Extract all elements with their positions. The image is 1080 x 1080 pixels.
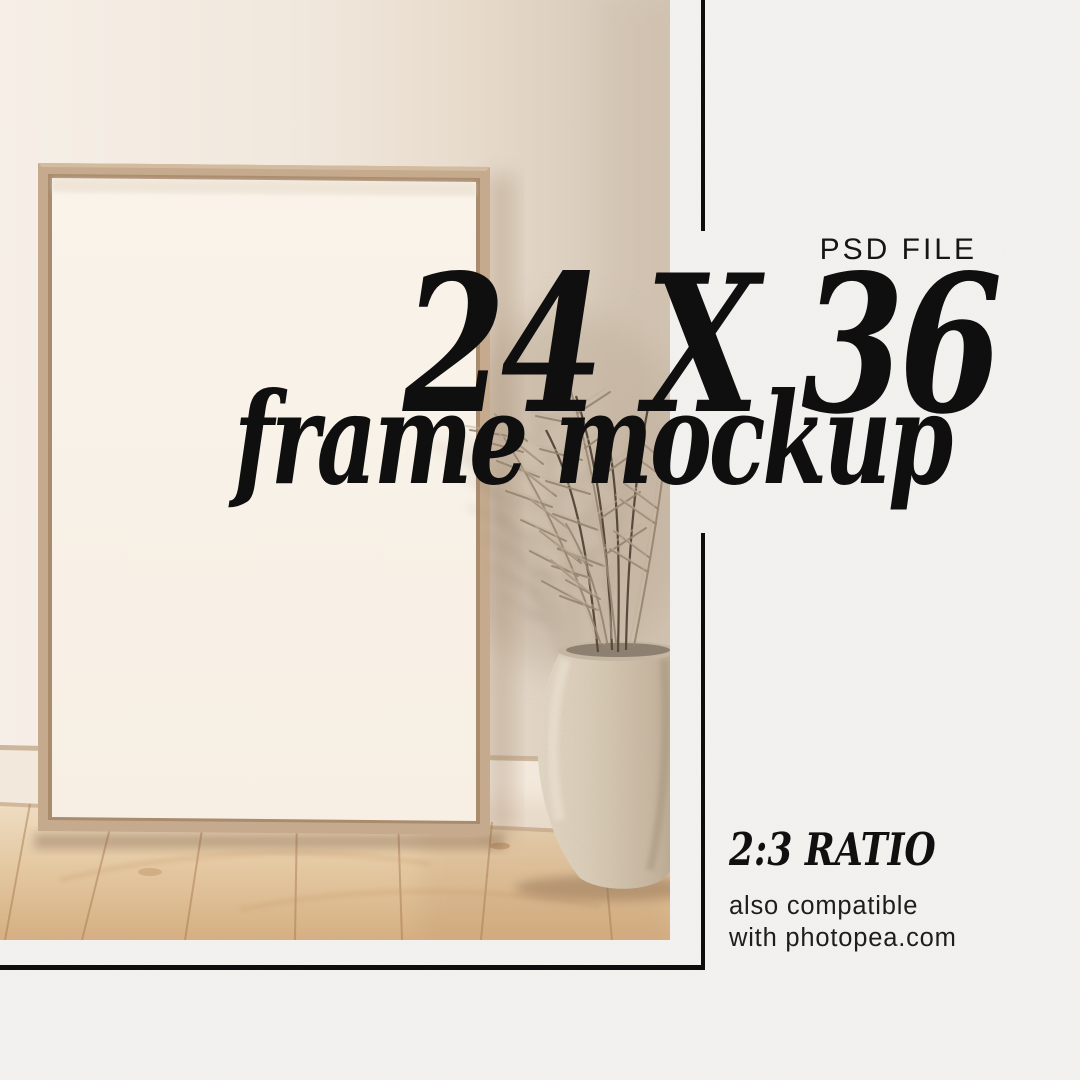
headline-subtitle: frame mockup	[234, 376, 950, 502]
compatibility-note: also compatible with photopea.com	[729, 890, 957, 955]
divider-line-bottom	[701, 533, 705, 970]
divider-line-top	[701, 0, 705, 231]
divider-line-horizontal	[0, 965, 705, 970]
compatibility-line-2: with photopea.com	[729, 922, 957, 954]
promo-canvas: PSD FILE 24 X 36 frame mockup 2:3 RATIO …	[0, 0, 1080, 1080]
compatibility-line-1: also compatible	[729, 890, 957, 922]
ratio-label: 2:3 RATIO	[729, 827, 936, 872]
